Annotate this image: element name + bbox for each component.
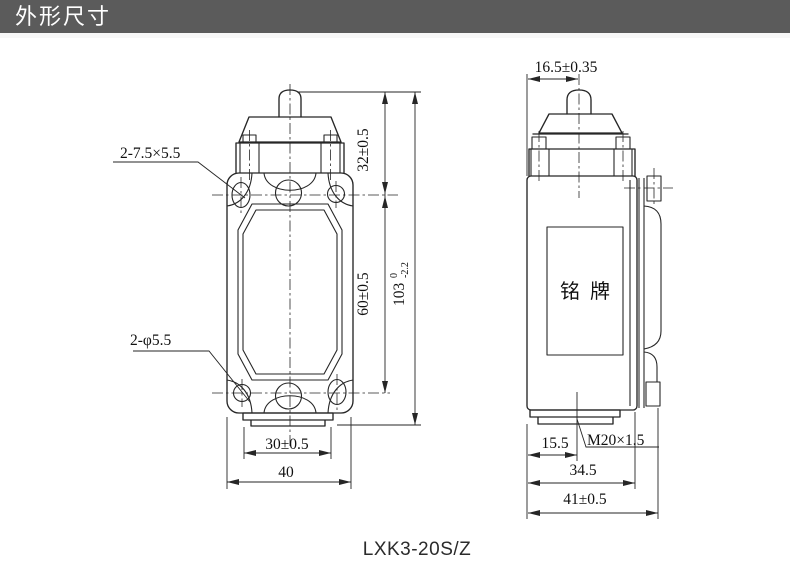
dimension-drawing: 2-7.5×5.5 2-φ5.5 32±0.5 60±0.5 103 0 -2.… [0, 0, 790, 581]
side-view: 铭牌 16.5±0.35 15.5 M20×1.5 34.5 41± [527, 59, 673, 519]
dim-overall-height-tol-lower: -2.2 [400, 262, 411, 278]
front-base-plates [243, 413, 333, 426]
bracket-boss [644, 206, 661, 382]
dim-overall-height-value: 103 [391, 283, 408, 307]
nameplate-label: 铭牌 [560, 279, 620, 303]
dim-overall-depth: 41±0.5 [563, 491, 607, 508]
center-hole-top [276, 180, 302, 206]
dim-top-to-holes: 32±0.5 [355, 128, 372, 172]
page: 外形尺寸 [0, 0, 790, 581]
dim-conduit-thread: M20×1.5 [587, 432, 645, 449]
bracket-plate [639, 178, 644, 408]
side-head [529, 134, 635, 176]
front-view: 2-7.5×5.5 2-φ5.5 32±0.5 60±0.5 103 0 -2.… [113, 84, 421, 489]
label-round-holes: 2-φ5.5 [130, 332, 171, 349]
dim-overall-height-tol-upper: 0 [389, 273, 400, 278]
side-centerlines [539, 74, 673, 207]
dim-body-depth: 34.5 [569, 462, 596, 479]
dim-base-width: 30±0.5 [265, 436, 309, 453]
front-leader-lines [113, 162, 250, 402]
side-rear-bracket [639, 176, 661, 408]
label-slot-holes: 2-7.5×5.5 [120, 145, 181, 162]
model-caption: LXK3-20S/Z [22, 539, 790, 561]
dim-hole-pitch: 60±0.5 [355, 272, 372, 316]
bracket-lower-clamp [646, 382, 660, 406]
dim-conduit-center: 15.5 [541, 435, 568, 452]
dim-overall-height: 103 0 -2.2 [389, 262, 411, 306]
side-base-plates [530, 410, 620, 424]
dim-overall-width: 40 [278, 464, 294, 481]
side-screw-knobs [531, 137, 632, 176]
side-bellows-cap [539, 114, 622, 133]
dim-plunger-center: 16.5±0.35 [535, 59, 598, 76]
